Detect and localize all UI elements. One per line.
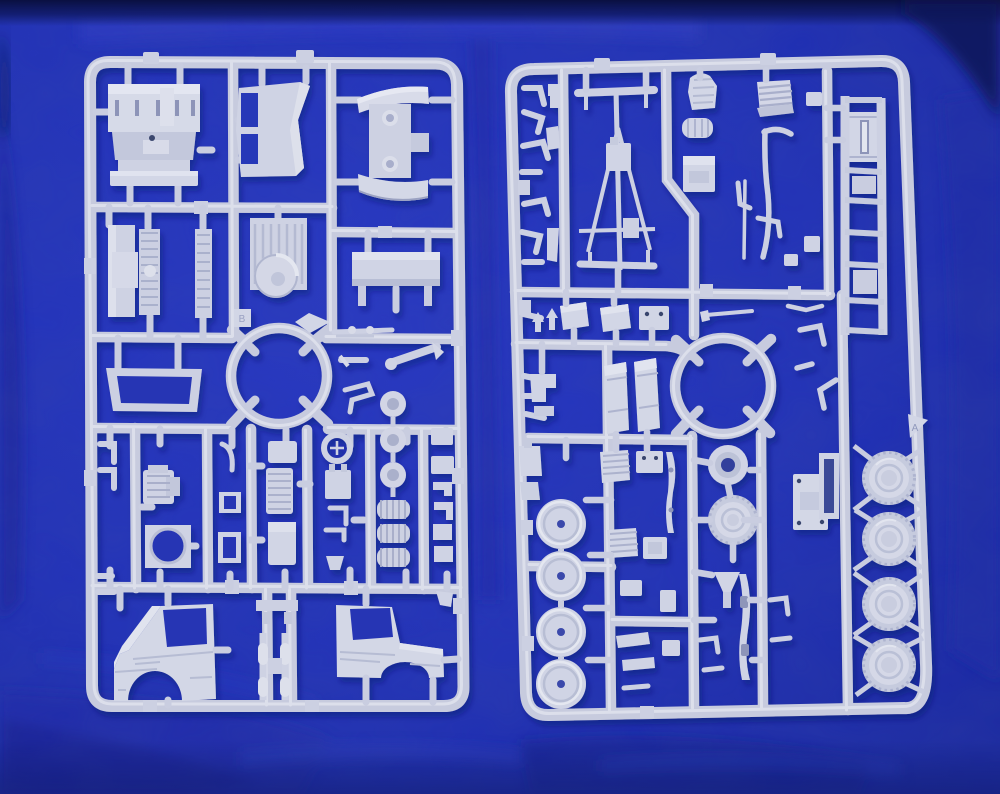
svg-text:B: B	[239, 314, 246, 325]
svg-text:A: A	[912, 423, 919, 434]
